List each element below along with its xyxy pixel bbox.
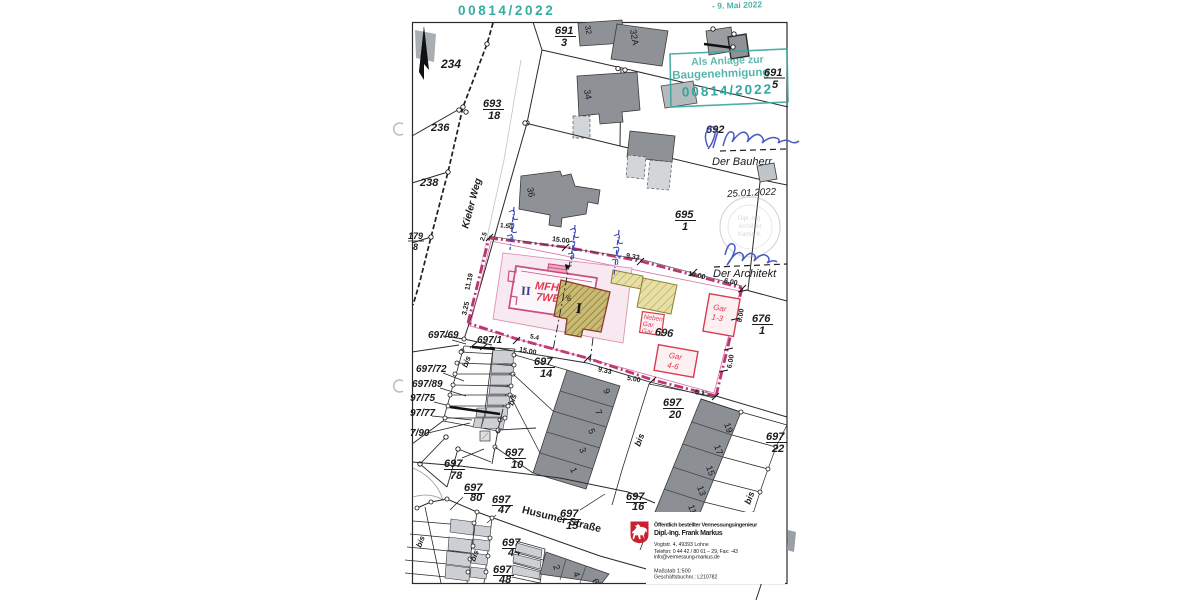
svg-text:697/69: 697/69 xyxy=(428,330,459,341)
svg-text:697: 697 xyxy=(505,447,524,459)
svg-text:7/90: 7/90 xyxy=(410,428,430,439)
svg-text:Architekt: Architekt xyxy=(738,224,762,230)
svg-text:97/75: 97/75 xyxy=(410,393,435,404)
svg-text:179: 179 xyxy=(408,231,423,241)
svg-text:697: 697 xyxy=(663,397,682,409)
svg-text:Vogtstr. 4, 49393 Lohne: Vogtstr. 4, 49393 Lohne xyxy=(654,542,709,548)
svg-text:234: 234 xyxy=(440,57,461,71)
svg-text:697: 697 xyxy=(560,508,579,520)
svg-text:1: 1 xyxy=(759,325,765,337)
svg-text:34: 34 xyxy=(582,89,594,101)
svg-text:696: 696 xyxy=(654,326,674,340)
svg-text:691: 691 xyxy=(555,25,573,37)
svg-text:00814/2022: 00814/2022 xyxy=(458,3,555,18)
svg-text:Kamin K.: Kamin K. xyxy=(738,232,763,238)
svg-text:695: 695 xyxy=(675,209,694,221)
svg-text:97/77: 97/77 xyxy=(410,408,435,419)
svg-text:15: 15 xyxy=(566,520,579,532)
svg-text:676: 676 xyxy=(752,313,771,325)
svg-text:Öffentlich bestellter Vermessu: Öffentlich bestellter Vermessungsingenie… xyxy=(654,521,758,528)
svg-text:697: 697 xyxy=(534,356,553,368)
svg-text:20: 20 xyxy=(668,409,682,421)
svg-text:3: 3 xyxy=(561,37,567,49)
svg-text:- 9. Mai 2022: - 9. Mai 2022 xyxy=(712,0,763,11)
svg-text:Dipl.-Ing. Frank Markus: Dipl.-Ing. Frank Markus xyxy=(654,530,723,537)
svg-text:36: 36 xyxy=(525,186,537,198)
svg-text:691: 691 xyxy=(764,67,782,79)
svg-text:8: 8 xyxy=(413,242,418,252)
svg-text:697/1: 697/1 xyxy=(477,335,502,346)
svg-text:Geschäftsbuchnr.: L210782: Geschäftsbuchnr.: L210782 xyxy=(654,574,718,580)
svg-text:697: 697 xyxy=(766,431,785,443)
svg-text:47: 47 xyxy=(497,504,511,516)
svg-text:10: 10 xyxy=(511,459,524,471)
svg-text:697/89: 697/89 xyxy=(412,379,443,390)
svg-text:18: 18 xyxy=(488,110,501,122)
svg-text:236: 236 xyxy=(430,122,450,134)
svg-text:697/72: 697/72 xyxy=(416,364,447,375)
svg-text:80: 80 xyxy=(470,492,483,504)
svg-text:78: 78 xyxy=(450,470,463,482)
svg-text:Der Architekt: Der Architekt xyxy=(713,268,777,280)
svg-text:Dipl.-Ing.: Dipl.-Ing. xyxy=(738,216,762,222)
svg-text:48: 48 xyxy=(498,574,512,586)
svg-text:238: 238 xyxy=(419,177,439,189)
svg-text:00814/2022: 00814/2022 xyxy=(682,81,774,99)
svg-text:14: 14 xyxy=(540,368,552,380)
svg-text:697: 697 xyxy=(444,458,463,470)
svg-text:16: 16 xyxy=(632,501,645,513)
svg-text:693: 693 xyxy=(483,98,501,110)
svg-text:II: II xyxy=(521,284,532,299)
svg-text:1: 1 xyxy=(682,221,688,233)
svg-text:Als Anlage zur: Als Anlage zur xyxy=(691,54,764,69)
svg-text:info@vermessung-markus.de: info@vermessung-markus.de xyxy=(654,554,720,560)
svg-text:5: 5 xyxy=(772,79,779,91)
svg-text:22: 22 xyxy=(771,443,784,455)
